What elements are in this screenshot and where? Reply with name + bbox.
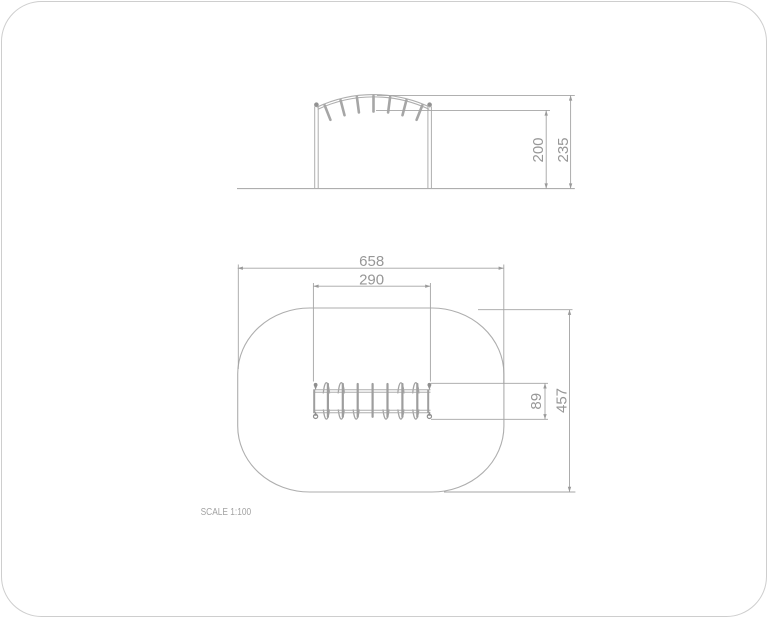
svg-text:89: 89: [528, 393, 545, 410]
svg-text:658: 658: [359, 253, 384, 270]
svg-text:200: 200: [530, 137, 547, 162]
svg-text:290: 290: [359, 272, 384, 289]
svg-text:SCALE 1:100: SCALE 1:100: [201, 507, 252, 518]
svg-text:457: 457: [553, 388, 570, 413]
svg-text:235: 235: [555, 137, 572, 162]
